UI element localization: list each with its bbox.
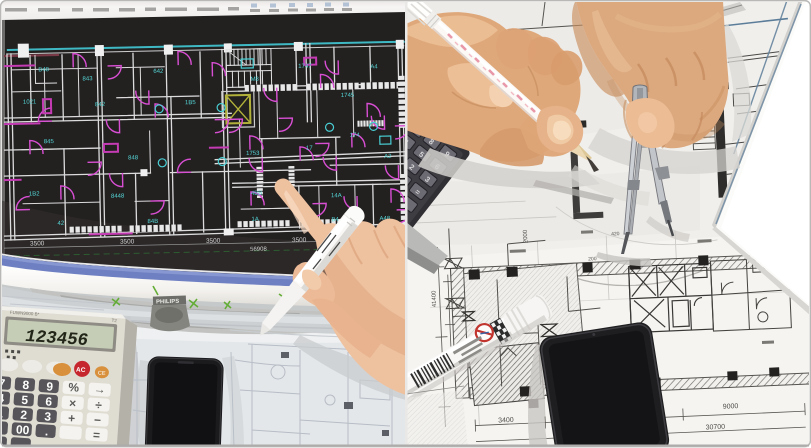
svg-text:B48: B48 — [38, 67, 49, 73]
svg-text:420: 420 — [611, 231, 620, 237]
svg-text:17: 17 — [306, 146, 313, 152]
svg-text:A2: A2 — [384, 154, 392, 160]
svg-text:1B2: 1B2 — [29, 191, 40, 197]
svg-text:M8: M8 — [250, 77, 259, 83]
svg-text:56908: 56908 — [250, 247, 267, 253]
svg-text:+: + — [68, 411, 76, 425]
svg-text:9: 9 — [46, 379, 54, 393]
svg-text:1021: 1021 — [23, 99, 37, 105]
svg-text:1745: 1745 — [341, 93, 355, 99]
svg-text:30700: 30700 — [706, 424, 726, 432]
svg-text:41400: 41400 — [431, 290, 438, 308]
svg-text:842: 842 — [95, 102, 106, 108]
svg-text:14A: 14A — [331, 193, 342, 199]
svg-text:3500: 3500 — [120, 238, 135, 245]
svg-text:6: 6 — [45, 394, 53, 408]
svg-text:−: − — [94, 413, 102, 427]
svg-text:A4: A4 — [370, 64, 378, 70]
svg-text:845: 845 — [44, 139, 55, 145]
svg-text:PHILIPS: PHILIPS — [156, 299, 179, 306]
svg-text:3: 3 — [44, 409, 52, 423]
svg-text:174: 174 — [350, 133, 361, 139]
svg-text:1B5: 1B5 — [185, 100, 196, 106]
svg-text:9000: 9000 — [723, 403, 739, 411]
svg-text:3500: 3500 — [30, 240, 45, 247]
svg-text:×: × — [69, 396, 77, 410]
svg-text:200: 200 — [588, 256, 597, 262]
svg-text:84B: 84B — [147, 219, 158, 225]
svg-text:42: 42 — [57, 221, 64, 227]
svg-text:AC: AC — [76, 366, 86, 374]
svg-text:%: % — [68, 380, 80, 395]
svg-text:→: → — [93, 382, 106, 397]
svg-text:2: 2 — [20, 408, 28, 422]
svg-text:1A: 1A — [251, 217, 258, 223]
svg-text:1747: 1747 — [298, 64, 312, 70]
svg-text:T2: T2 — [111, 318, 117, 323]
svg-text:1753: 1753 — [246, 151, 260, 157]
svg-text:5: 5 — [21, 393, 29, 407]
svg-text:8: 8 — [22, 378, 30, 392]
svg-text:2000: 2000 — [523, 229, 530, 243]
svg-text:=: = — [93, 428, 101, 442]
svg-text:843: 843 — [82, 76, 93, 82]
svg-text:00: 00 — [16, 422, 31, 437]
svg-text:3400: 3400 — [498, 417, 514, 425]
svg-text:3500: 3500 — [292, 237, 307, 244]
svg-text:CE: CE — [98, 370, 106, 377]
svg-text:4BB: 4BB — [251, 191, 262, 197]
svg-text:3500: 3500 — [206, 238, 221, 245]
svg-text:8448: 8448 — [111, 194, 125, 200]
svg-text:642: 642 — [153, 69, 164, 75]
svg-text:848: 848 — [128, 155, 139, 161]
